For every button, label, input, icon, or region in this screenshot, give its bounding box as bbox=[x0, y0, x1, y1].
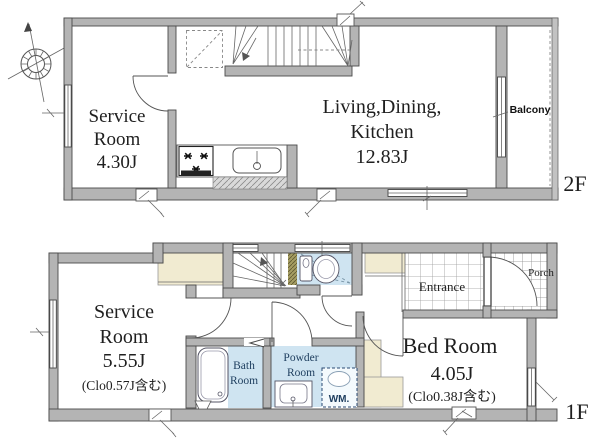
vent-icon bbox=[452, 407, 476, 419]
vent-icon bbox=[136, 189, 157, 201]
closet bbox=[364, 377, 403, 407]
label-floor-1f: 1F bbox=[565, 399, 588, 424]
label-porch: Porch bbox=[528, 267, 554, 279]
vent-icon bbox=[317, 189, 336, 201]
compass-icon bbox=[8, 22, 66, 102]
label-floor-2f: 2F bbox=[563, 171, 586, 196]
label-1f-service-room-area: 5.55J bbox=[103, 350, 146, 372]
label-1f-service-room-note: (Clo0.57J含む) bbox=[82, 378, 166, 393]
front-door-leaf bbox=[484, 257, 491, 306]
label-bed-room-area: 4.05J bbox=[431, 363, 474, 385]
closet bbox=[158, 252, 223, 285]
label-1f-service-room-line1: Service bbox=[94, 301, 154, 323]
washbasin-icon bbox=[275, 381, 312, 407]
floor-2f-plan: Service Room 4.30J Living,Dining, Kitche… bbox=[42, 1, 587, 217]
stove-front bbox=[181, 171, 211, 176]
north-arrow-icon bbox=[24, 22, 32, 32]
label-bath-room-line2: Room bbox=[230, 375, 258, 387]
label-2f-service-room-area: 4.30J bbox=[97, 152, 138, 173]
label-2f-service-room-line2: Room bbox=[94, 129, 141, 150]
counter-hatch bbox=[213, 177, 287, 189]
label-powder-room-line2: Room bbox=[287, 367, 315, 379]
label-balcony: Balcony bbox=[510, 104, 551, 116]
label-washing-machine: WM. bbox=[329, 394, 350, 405]
label-entrance: Entrance bbox=[419, 279, 465, 294]
label-1f-service-room-line2: Room bbox=[100, 326, 149, 348]
label-ldk-line1: Living,Dining, bbox=[323, 96, 442, 118]
floorplan-image: Service Room 4.30J Living,Dining, Kitche… bbox=[0, 0, 600, 439]
porch-tile bbox=[484, 253, 547, 312]
label-bed-room: Bed Room bbox=[403, 333, 498, 358]
label-powder-room-line1: Powder bbox=[283, 352, 318, 364]
label-2f-service-room-line1: Service bbox=[89, 106, 146, 127]
floor-1f-plan: Service Room 5.55J (Clo0.57J含む) Bath Roo… bbox=[30, 241, 589, 437]
label-bed-room-note: (Clo0.38J含む) bbox=[408, 389, 496, 405]
label-ldk-line2: Kitchen bbox=[350, 121, 413, 143]
label-bath-room-line1: Bath bbox=[233, 360, 255, 372]
label-ldk-area: 12.83J bbox=[356, 146, 409, 168]
